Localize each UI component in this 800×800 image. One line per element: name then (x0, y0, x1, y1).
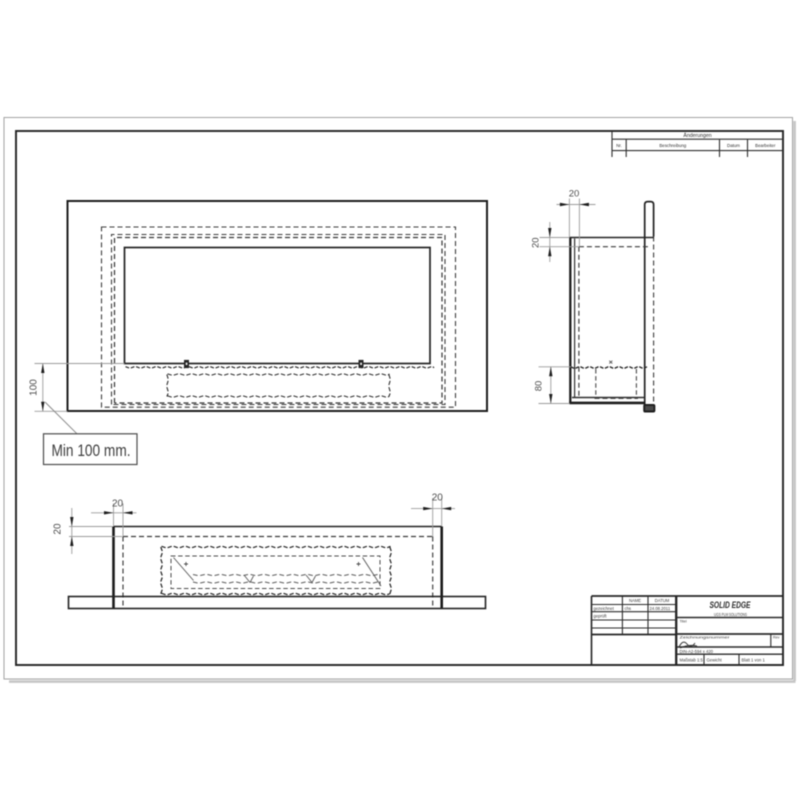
svg-text:DIN-A2-594 x 420: DIN-A2-594 x 420 (680, 649, 714, 654)
svg-text:20: 20 (53, 523, 64, 535)
svg-text:NAME: NAME (629, 598, 641, 603)
svg-text:20: 20 (112, 498, 124, 509)
svg-text:chs: chs (625, 606, 632, 611)
svg-text:20: 20 (569, 189, 580, 200)
svg-text:Gewicht: Gewicht (707, 657, 723, 662)
svg-text:Bearbeiter: Bearbeiter (755, 143, 776, 148)
svg-text:24.08.2011: 24.08.2011 (650, 606, 671, 611)
svg-text:Rev: Rev (773, 636, 780, 640)
svg-text:Änderungen: Änderungen (683, 132, 711, 139)
svg-text:Blatt 1 von 1: Blatt 1 von 1 (742, 657, 766, 662)
svg-text:gezeichnet: gezeichnet (594, 606, 615, 611)
svg-text:geprüft: geprüft (594, 614, 608, 619)
svg-text:20: 20 (531, 237, 542, 248)
svg-text:Beschreibung: Beschreibung (659, 143, 686, 148)
svg-text:Titel: Titel (680, 619, 687, 623)
svg-text:DATUM: DATUM (655, 598, 670, 603)
svg-text:100: 100 (29, 379, 40, 396)
svg-text:SOLID EDGE: SOLID EDGE (710, 600, 752, 610)
svg-text:UGS PLM SOLUTIONS: UGS PLM SOLUTIONS (714, 612, 747, 617)
svg-text:Maßstab 1:5: Maßstab 1:5 (680, 657, 704, 662)
svg-text:Min 100 mm.: Min 100 mm. (52, 442, 131, 460)
svg-text:Nr.: Nr. (616, 143, 622, 148)
svg-text:20: 20 (432, 493, 444, 504)
svg-text:80: 80 (534, 381, 545, 392)
svg-text:Zeichnungsnummer: Zeichnungsnummer (680, 635, 731, 640)
svg-text:Datum: Datum (727, 143, 740, 148)
